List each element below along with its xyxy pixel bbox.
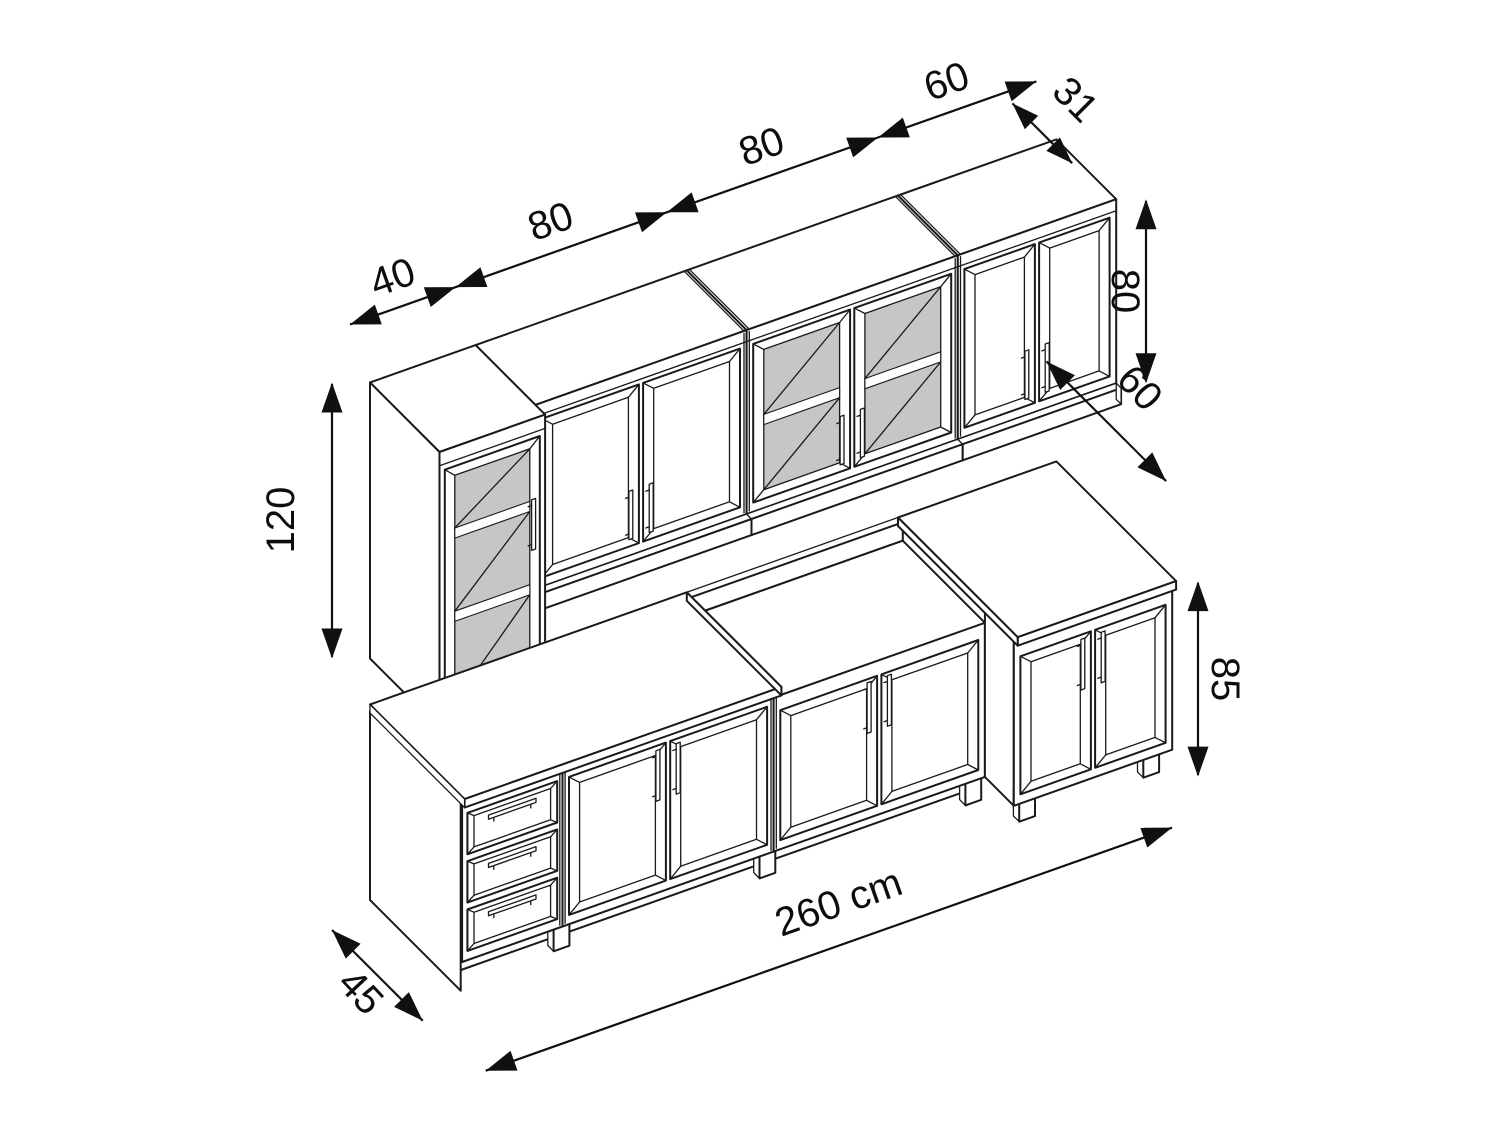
dim-label-60-top: 60 — [918, 54, 975, 110]
kitchen-dimension-drawing: 40 80 80 60 31 80 120 60 85 45 260 cm — [0, 0, 1500, 1125]
diagram-svg: 40 80 80 60 31 80 120 60 85 45 260 cm — [0, 0, 1500, 1125]
dim-label-base-depth: 45 — [329, 961, 392, 1024]
dim-label-worktop-depth: 60 — [1108, 357, 1171, 420]
dim-label-80-left: 80 — [522, 194, 579, 250]
dim-label-base-height: 85 — [1203, 657, 1247, 702]
dim-label-wall-height: 80 — [1103, 269, 1147, 314]
dim-label-wall-depth: 31 — [1044, 69, 1107, 132]
dim-label-total-width: 260 cm — [769, 860, 907, 945]
dim-label-80-middle: 80 — [733, 119, 790, 175]
cabinet-line-art — [322, 81, 1209, 1070]
dim-label-tall-width: 40 — [364, 250, 421, 306]
dim-label-tall-height: 120 — [259, 487, 303, 554]
